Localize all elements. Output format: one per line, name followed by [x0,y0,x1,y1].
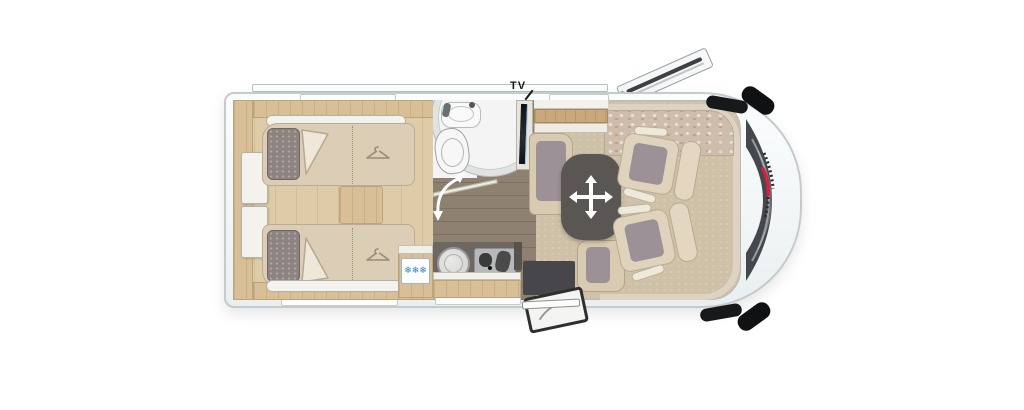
side-mirror-bottom [700,296,790,330]
side-bench-cushion [586,247,610,283]
windshield [742,105,802,295]
cab-seat-insert [628,142,668,185]
bed-bottom-blanket [300,234,330,284]
hob-knob [488,266,492,270]
entry-step-open [520,288,592,340]
tv-label: TV [510,80,526,92]
toilet-bowl [441,138,464,167]
mirror-arm [699,302,743,322]
fridge-snowflake-panel: ❄❄❄ [401,258,430,284]
sideboard-wall-band [534,100,608,109]
hanger-icon [364,248,392,262]
bed-bottom-fold-line [352,228,353,284]
floorplan-canvas: ❄❄❄ TV [0,0,1024,410]
awning-bar [252,84,608,92]
sideboard-front [534,123,608,133]
kitchen-sink-lid-line [444,254,463,273]
sideboard-top [534,109,608,123]
bed-bottom-pillow [267,230,300,282]
kitchen-side-panel [514,242,522,270]
bed-top-blanket [300,128,330,178]
hanger-icon [364,146,392,160]
hob-burner-left [479,253,492,267]
bed-top-pillow [267,128,300,180]
mirror-head [734,299,773,334]
snowflake-icons: ❄❄❄ [402,259,429,283]
bed-center-step [339,186,383,224]
bathroom-sink-bowl [448,106,474,122]
curved-double-arrow-icon [428,170,472,222]
cab-seat-front [615,128,705,205]
fridge-top-band [398,245,433,254]
four-way-arrow-icon [567,173,615,221]
bed-top-fold-line [352,126,353,184]
kitchen-base-cabinet [433,280,521,298]
kitchen-counter-edge [433,272,521,280]
bed-bottom-footboard [266,280,406,292]
side-mirror-top [706,90,796,124]
shower-mixer-icon [469,102,475,108]
